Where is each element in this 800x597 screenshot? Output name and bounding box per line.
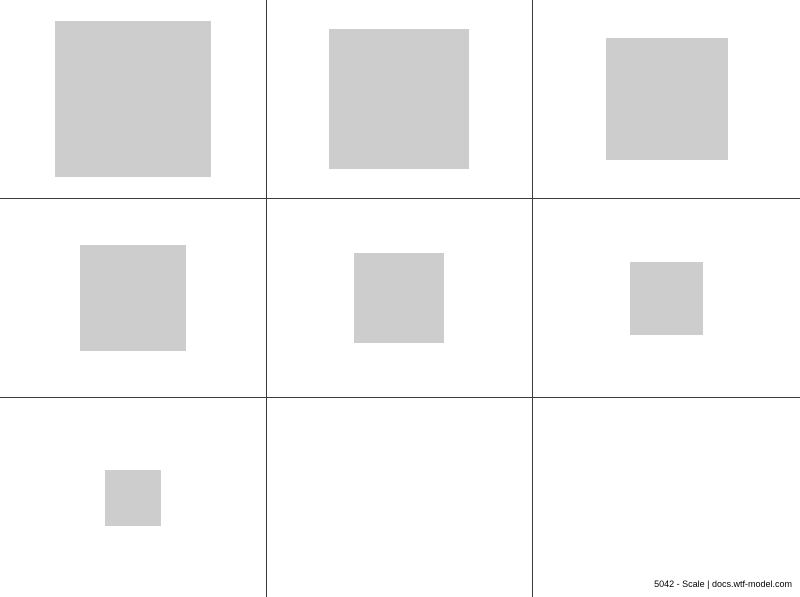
gray-square [55,21,211,177]
three-by-three-grid [0,0,800,597]
gray-square [630,262,703,335]
grid-cell [533,199,800,398]
gray-square [80,245,186,351]
footer-watermark: 5042 - Scale | docs.wtf-model.com [654,579,792,590]
grid-cell [0,398,267,597]
grid-cell [267,199,534,398]
scale-figure: 5042 - Scale | docs.wtf-model.com [0,0,800,597]
gray-square [329,29,469,169]
grid-cell-empty [533,398,800,597]
gray-square [606,38,728,160]
grid-cell [533,0,800,199]
gray-square [354,253,444,343]
grid-cell [267,0,534,199]
grid-cell [0,199,267,398]
grid-cell [0,0,267,199]
grid-cell-empty [267,398,534,597]
gray-square [105,470,161,526]
